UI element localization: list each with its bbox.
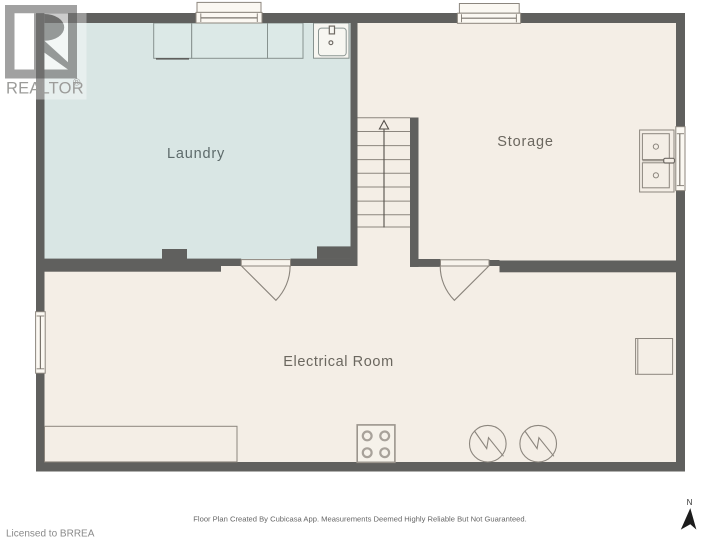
svg-text:Laundry: Laundry (167, 146, 225, 162)
svg-text:N: N (687, 498, 693, 507)
svg-text:Floor Plan Created By Cubicasa: Floor Plan Created By Cubicasa App. Meas… (193, 515, 526, 524)
svg-text:Licensed to BRREA: Licensed to BRREA (6, 529, 95, 540)
svg-text:Electrical Room: Electrical Room (283, 354, 394, 370)
svg-text:®: ® (73, 78, 81, 89)
svg-text:Storage: Storage (497, 134, 553, 150)
